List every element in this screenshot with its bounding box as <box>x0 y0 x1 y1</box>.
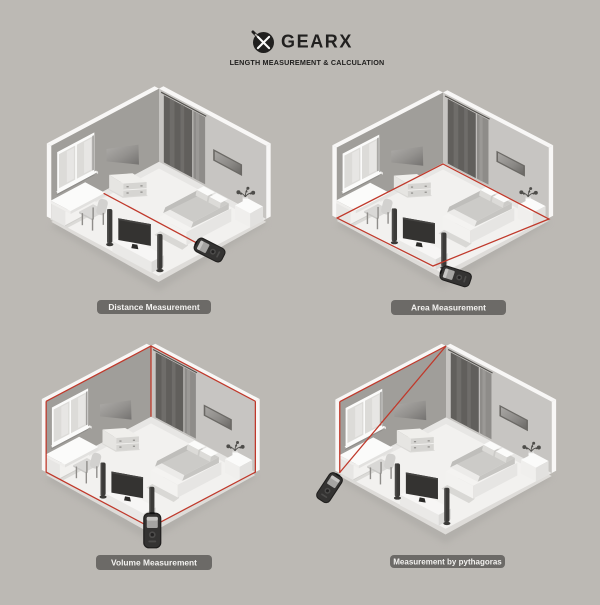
svg-text:Distance Measurement: Distance Measurement <box>108 302 199 312</box>
svg-text:GEARX: GEARX <box>281 31 353 51</box>
svg-text:Measurement by pythagoras: Measurement by pythagoras <box>393 558 502 567</box>
svg-text:Volume Measurement: Volume Measurement <box>111 558 197 568</box>
svg-text:Area Measurement: Area Measurement <box>411 303 486 313</box>
svg-text:LENGTH MEASUREMENT & CALCULATI: LENGTH MEASUREMENT & CALCULATION <box>230 58 385 67</box>
